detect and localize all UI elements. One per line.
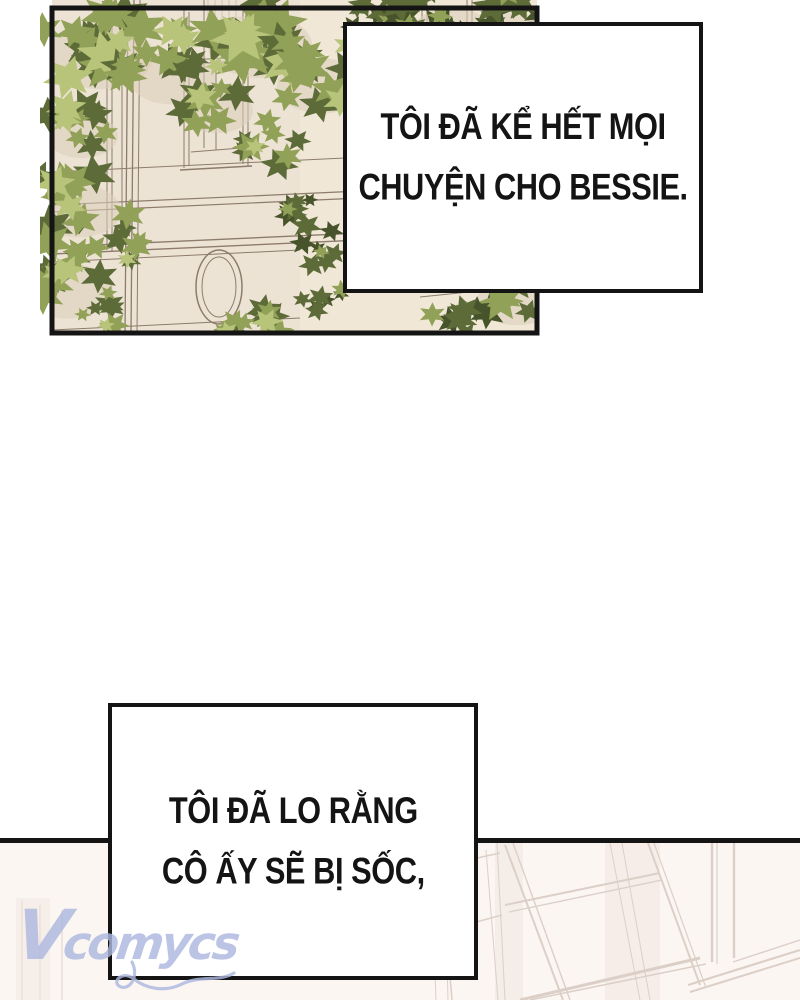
bubble-text-line: CHUYỆN CHO BESSIE. <box>358 166 687 207</box>
bubble-text-line: CÔ ẤY SẼ BỊ SỐC, <box>162 850 425 891</box>
bubble-text-line: TÔI ĐÃ KỂ HẾT MỌI <box>380 106 665 147</box>
speech-text-bottom: TÔI ĐÃ LO RẰNG CÔ ẤY SẼ BỊ SỐC, <box>162 781 425 901</box>
speech-bubble-bottom: TÔI ĐÃ LO RẰNG CÔ ẤY SẼ BỊ SỐC, <box>108 703 478 980</box>
comic-page: TÔI ĐÃ KỂ HẾT MỌI CHUYỆN CHO BESSIE. TÔI… <box>0 0 800 1000</box>
speech-bubble-top: TÔI ĐÃ KỂ HẾT MỌI CHUYỆN CHO BESSIE. <box>343 22 703 293</box>
bubble-text-line: TÔI ĐÃ LO RẰNG <box>169 790 418 831</box>
speech-text-top: TÔI ĐÃ KỂ HẾT MỌI CHUYỆN CHO BESSIE. <box>358 97 687 217</box>
